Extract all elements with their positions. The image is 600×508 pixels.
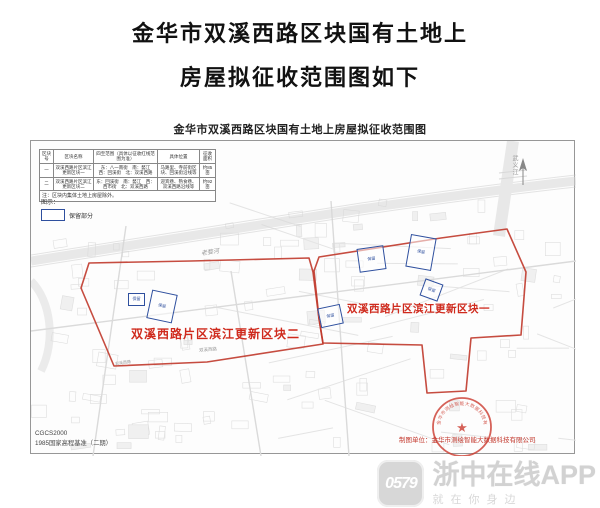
street-texture [31,199,576,456]
table-cell: 双溪西路片区滨江更新区块一 [54,163,94,177]
map-sheet: 金华市测绘智能大数据科技有限公司 ★ 区块号区块名称四至范围（具体以征收红线范围… [30,140,575,454]
table-cell: 东：回溪街 南：婺江 西：西市街 北：双溪西路 [94,177,158,191]
datum-line2: 1985国家高程基准（二期） [35,439,112,449]
table-row: 二双溪西路片区滨江更新区块二东：回溪街 南：婺江 西：西市街 北：双溪西路迎宾巷… [40,177,216,191]
legend-item-label: 保留部分 [69,211,93,220]
table-cell: 迎宾巷、熟食巷、双溪西路沿线等 [158,177,200,191]
block2-label: 双溪西路片区滨江更新区块二 [131,325,300,342]
datum-line1: CGCS2000 [35,429,112,439]
info-table: 区块号区块名称四至范围（具体以征收红线范围为准）具体位置征收面积 一双溪西路片区… [39,149,216,202]
retained-area: 保留 [356,245,386,273]
info-table-head: 区块号区块名称四至范围（具体以征收红线范围为准）具体位置征收面积 [40,150,216,164]
retained-area: 保留 [128,293,145,306]
block1-label: 双溪西路片区滨江更新区块一 [347,301,490,316]
retained-swatch-icon [41,209,65,221]
watermark-subtitle: 就在你身边 [432,491,596,507]
river-label-vertical: 武义江 [510,155,519,176]
watermark-title: 浙中在线APP [432,461,596,489]
table-header-cell: 具体位置 [158,150,200,164]
table-cell: 约85亩 [200,163,216,177]
table-cell: 一 [40,163,54,177]
legend-title: 图示： [41,197,93,206]
badge-number: 0579 [385,475,417,493]
datum-note: CGCS2000 1985国家高程基准（二期） [35,429,112,449]
table-cell: 双溪西路片区滨江更新区块二 [54,177,94,191]
table-cell: 东：八一南街 南：婺江 西：回溪街 北：双溪西路 [94,163,158,177]
table-cell: 马路里、寺前街区块、回溪街沿线等 [158,163,200,177]
table-cell: 二 [40,177,54,191]
mapping-credit: 制图单位：金华市测绘智能大数据科技有限公司 [399,434,536,444]
page-title-line1: 金华市双溪西路区块国有土地上 [0,12,600,56]
page-title-line2: 房屋拟征收范围图如下 [0,56,600,100]
table-cell: 约92亩 [200,177,216,191]
table-header-cell: 区块名称 [54,150,94,164]
table-header-cell: 征收面积 [200,150,216,164]
table-header-cell: 四至范围（具体以征收红线范围为准） [94,150,158,164]
legend: 图示： 保留部分 [41,197,93,221]
table-row: 一双溪西路片区滨江更新区块一东：八一南街 南：婺江 西：回溪街 北：双溪西路马路… [40,163,216,177]
seal-star-icon: ★ [456,420,468,435]
page-title: 金华市双溪西路区块国有土地上 房屋拟征收范围图如下 [0,12,600,100]
table-header-cell: 区块号 [40,150,54,164]
road-label: 双溪西路 [199,346,217,353]
app-badge-icon: 0579 [377,460,424,507]
map-figure-title: 金华市双溪西路区块国有土地上房屋拟征收范围图 [0,121,600,137]
watermark: 0579 浙中在线APP 就在你身边 [377,460,596,507]
article-page: 金华市双溪西路区块国有土地上 房屋拟征收范围图如下 金华市双溪西路区块国有土地上… [0,0,600,508]
